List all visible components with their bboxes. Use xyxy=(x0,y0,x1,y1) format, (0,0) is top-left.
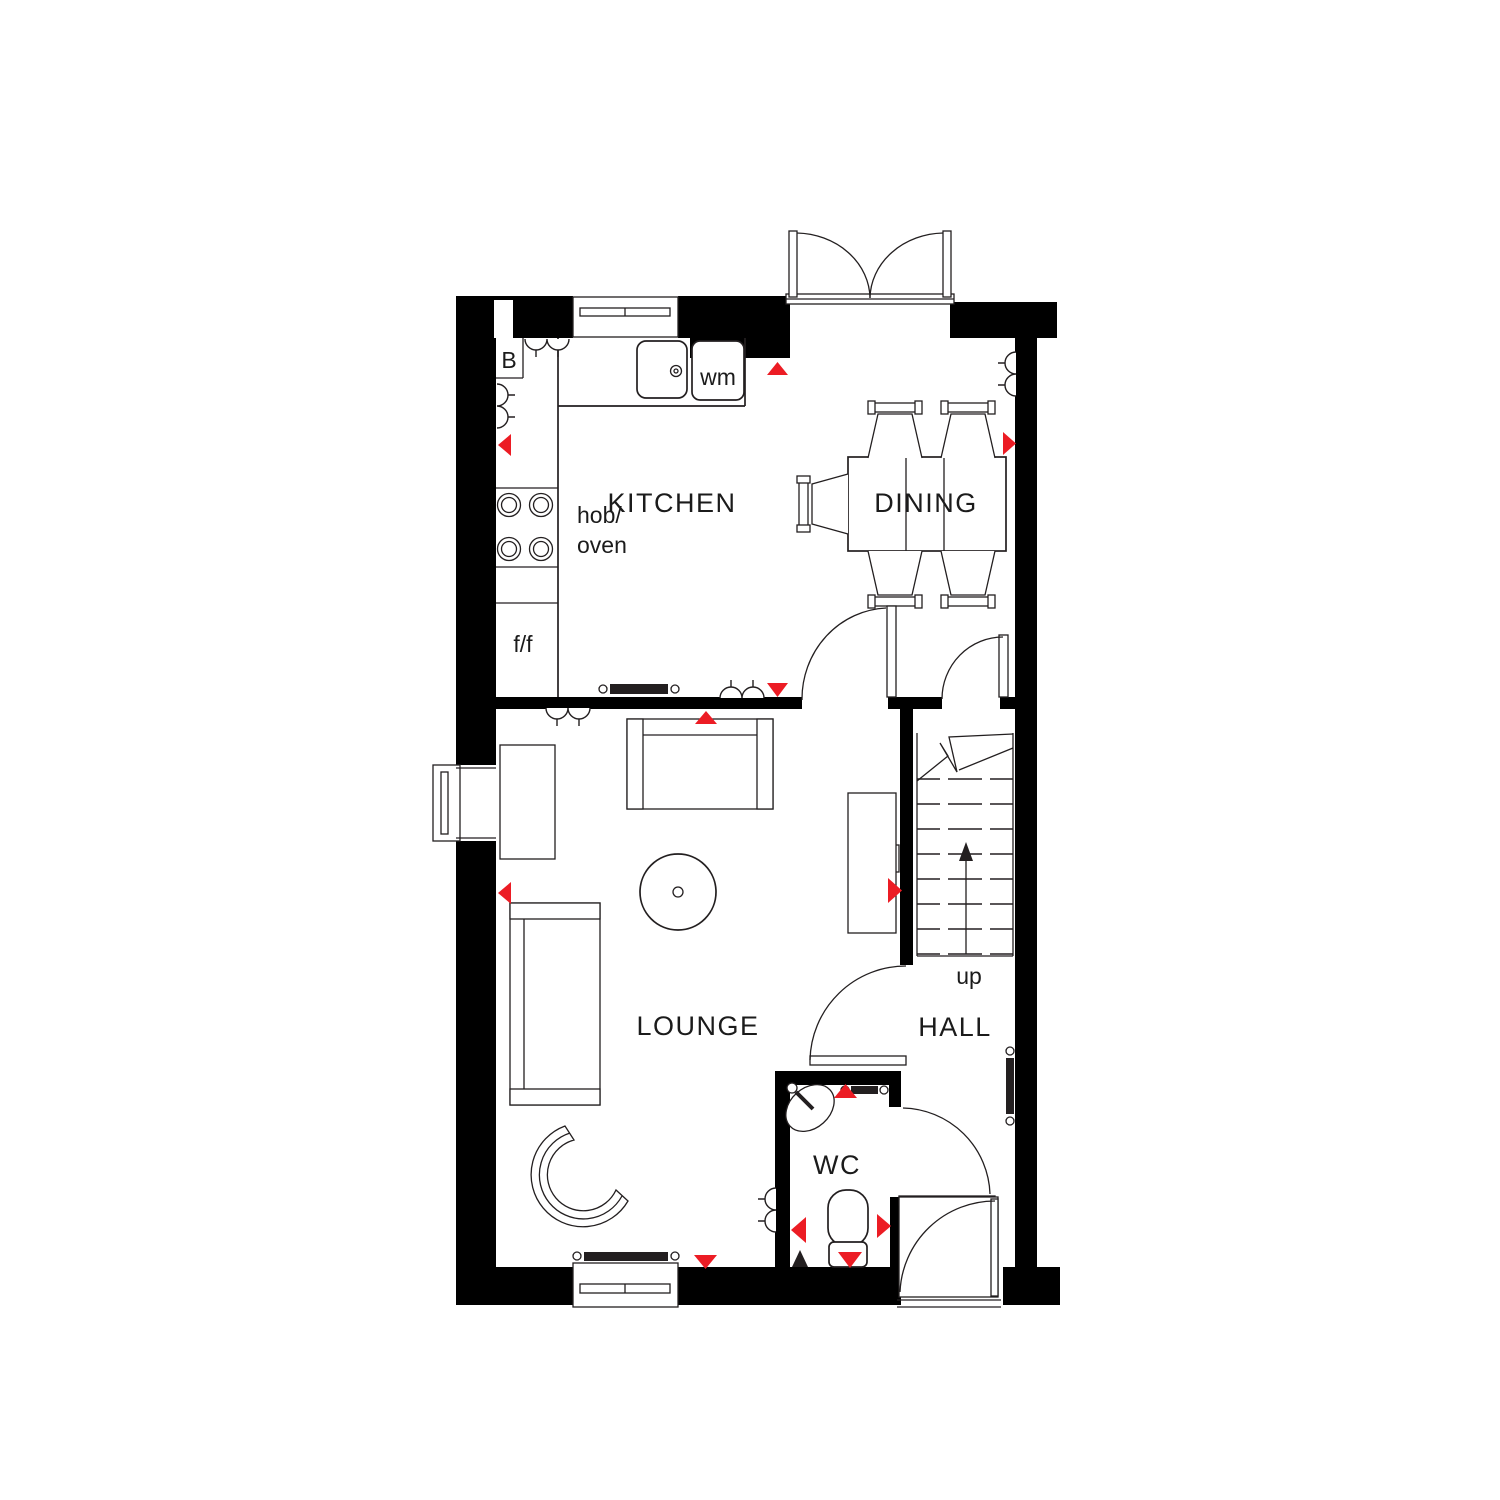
double-socket-icon xyxy=(497,384,515,428)
wall-wc-west xyxy=(775,1071,790,1267)
door-swing-arc xyxy=(797,233,870,298)
wall-bottom-left xyxy=(456,1267,573,1305)
staircase xyxy=(917,733,1013,956)
chair-seat xyxy=(812,474,848,534)
vent-arrow-right-dining-icon xyxy=(1003,432,1016,455)
dining-chair xyxy=(941,401,995,458)
radiator-valve xyxy=(671,1252,679,1260)
radiator-bar xyxy=(1006,1058,1014,1114)
boiler-label: B xyxy=(501,347,516,373)
dining-chair xyxy=(941,551,995,608)
tub-chair-shell xyxy=(531,1126,628,1227)
vent-arrow-left-wc-icon xyxy=(791,1217,806,1243)
sideboard xyxy=(500,745,555,859)
radiator-lounge xyxy=(573,1252,679,1261)
vent-arrow-up-lounge-icon xyxy=(695,711,717,724)
chair-back xyxy=(988,595,995,608)
dining-chair xyxy=(868,551,922,608)
wall-left-upper xyxy=(456,296,496,765)
dining-chair xyxy=(868,401,922,458)
chair-back xyxy=(915,595,922,608)
double-socket-icon xyxy=(720,680,764,698)
stair-break-line xyxy=(959,748,1013,770)
chair-back xyxy=(872,597,918,606)
wall-right xyxy=(1015,338,1037,1268)
toilet-bowl xyxy=(828,1190,868,1246)
basin-tap xyxy=(787,1083,797,1093)
front-door-threshold xyxy=(897,1300,1001,1307)
wall-lounge-hall xyxy=(900,697,913,965)
double-socket-icon xyxy=(525,339,569,357)
radiator-bar xyxy=(851,1086,878,1094)
vent-arrow-down-lounge-icon xyxy=(694,1255,717,1269)
hob-burner xyxy=(534,498,549,513)
hall-label: HALL xyxy=(918,1012,992,1042)
door-leaf xyxy=(887,606,896,697)
chair-back xyxy=(941,401,948,414)
tv-unit xyxy=(848,793,896,933)
chair-back xyxy=(941,595,948,608)
sofa-arm xyxy=(510,903,600,919)
boiler-flue-gap xyxy=(494,300,513,338)
wall-kitchen-lounge xyxy=(496,697,802,709)
french-door-leaf-left xyxy=(789,231,797,297)
front-door xyxy=(897,1197,1001,1307)
wall-bottom-mid xyxy=(678,1267,890,1305)
chair-seat xyxy=(868,414,922,458)
coffee-table xyxy=(640,854,716,930)
stair-strings xyxy=(917,733,1013,956)
floor-plan-drawing: M P xyxy=(0,0,1500,1500)
chair-back xyxy=(797,476,810,483)
chair-back xyxy=(945,403,991,412)
window-glazing xyxy=(441,772,448,834)
radiator-valve xyxy=(880,1086,888,1094)
chair-seat xyxy=(941,551,995,595)
kitchen-label: KITCHEN xyxy=(607,488,736,518)
kitchen-door xyxy=(802,606,896,700)
vent-arrow-left-kitchen-icon xyxy=(498,434,511,456)
lounge-window-bottom xyxy=(573,1263,678,1307)
stair-break-line xyxy=(917,734,1013,781)
radiator-bar xyxy=(584,1252,668,1261)
window-reveal xyxy=(456,768,496,838)
wall-stub-right xyxy=(1000,697,1015,709)
chair-back xyxy=(945,597,991,606)
dining-label: DINING xyxy=(874,488,978,518)
chair-back xyxy=(915,401,922,414)
radiator-valve xyxy=(573,1252,581,1260)
hob-burner xyxy=(534,542,549,557)
hob-label-line2: oven xyxy=(577,532,627,558)
door-swing-arc xyxy=(810,966,906,1060)
chair-back xyxy=(988,401,995,414)
chair-back xyxy=(868,401,875,414)
sofa-body xyxy=(627,719,773,809)
radiator-hall xyxy=(1006,1047,1014,1125)
wall-bottom-right-block xyxy=(1003,1267,1060,1305)
door-swing-arc xyxy=(802,608,886,700)
double-socket-icon xyxy=(758,1188,776,1232)
door-swing-arc xyxy=(903,1108,990,1194)
chair-back xyxy=(872,403,918,412)
stairs-up-label: up xyxy=(956,963,982,989)
radiator-valve xyxy=(1006,1047,1014,1055)
wall-stub-mid xyxy=(888,697,942,709)
sofa-two-seat xyxy=(627,719,773,809)
radiator-kitchen xyxy=(599,684,679,694)
chair-back xyxy=(868,595,875,608)
door-leaf xyxy=(810,1056,906,1065)
floor-plan-page: M P xyxy=(0,0,1500,1500)
wall-top-right xyxy=(950,302,1057,338)
wc-door xyxy=(899,1108,995,1205)
sofa-three-seat xyxy=(510,903,600,1105)
vent-arrow-up-kitchen-icon xyxy=(767,362,788,375)
radiator-valve xyxy=(599,685,607,693)
chair-seat xyxy=(868,551,922,595)
sofa-arm xyxy=(757,719,773,809)
door-leaf xyxy=(999,635,1008,697)
lounge-window-left xyxy=(433,765,496,841)
double-socket-icon xyxy=(998,352,1016,396)
wall-left-lower xyxy=(456,841,496,1305)
radiator-valve xyxy=(1006,1117,1014,1125)
chair-back xyxy=(797,525,810,532)
sofa-arm xyxy=(510,1089,600,1105)
hob-label-line1: hob/ xyxy=(577,502,622,528)
chair-seat xyxy=(941,414,995,458)
vent-arrow-right-wc-icon xyxy=(877,1214,891,1238)
chair-back xyxy=(799,480,808,528)
sofa-arm xyxy=(627,719,643,809)
dining-hall-door xyxy=(942,635,1008,699)
kitchen-sink xyxy=(637,341,687,398)
wc-label: WC xyxy=(813,1150,861,1180)
tub-chair xyxy=(531,1126,628,1227)
door-swing-arc xyxy=(870,233,943,298)
hob-burner xyxy=(502,542,517,557)
drain-marker-icon xyxy=(792,1250,808,1267)
french-door-leaf-right xyxy=(943,231,951,297)
window-frame xyxy=(573,297,678,337)
vent-arrow-down-kitchen-icon xyxy=(767,683,788,697)
fridge-freezer-label: f/f xyxy=(513,631,533,657)
washing-machine-label: wm xyxy=(699,364,736,390)
door-swing-arc xyxy=(942,637,1003,699)
hob-burner xyxy=(502,498,517,513)
vent-arrow-left-lounge-icon xyxy=(498,882,511,904)
lounge-hall-door xyxy=(810,966,906,1065)
door-leaf xyxy=(991,1199,998,1296)
wall-wc-east-pier xyxy=(889,1085,901,1107)
double-socket-icon xyxy=(546,708,590,726)
lounge-label: LOUNGE xyxy=(636,1011,759,1041)
radiator-bar xyxy=(610,684,668,694)
french-doors xyxy=(786,231,954,304)
wall-top-mid xyxy=(678,296,790,338)
dining-chair xyxy=(797,474,848,534)
radiator-valve xyxy=(671,685,679,693)
stair-up-arrow-icon xyxy=(959,842,973,861)
kitchen-window xyxy=(573,297,678,337)
